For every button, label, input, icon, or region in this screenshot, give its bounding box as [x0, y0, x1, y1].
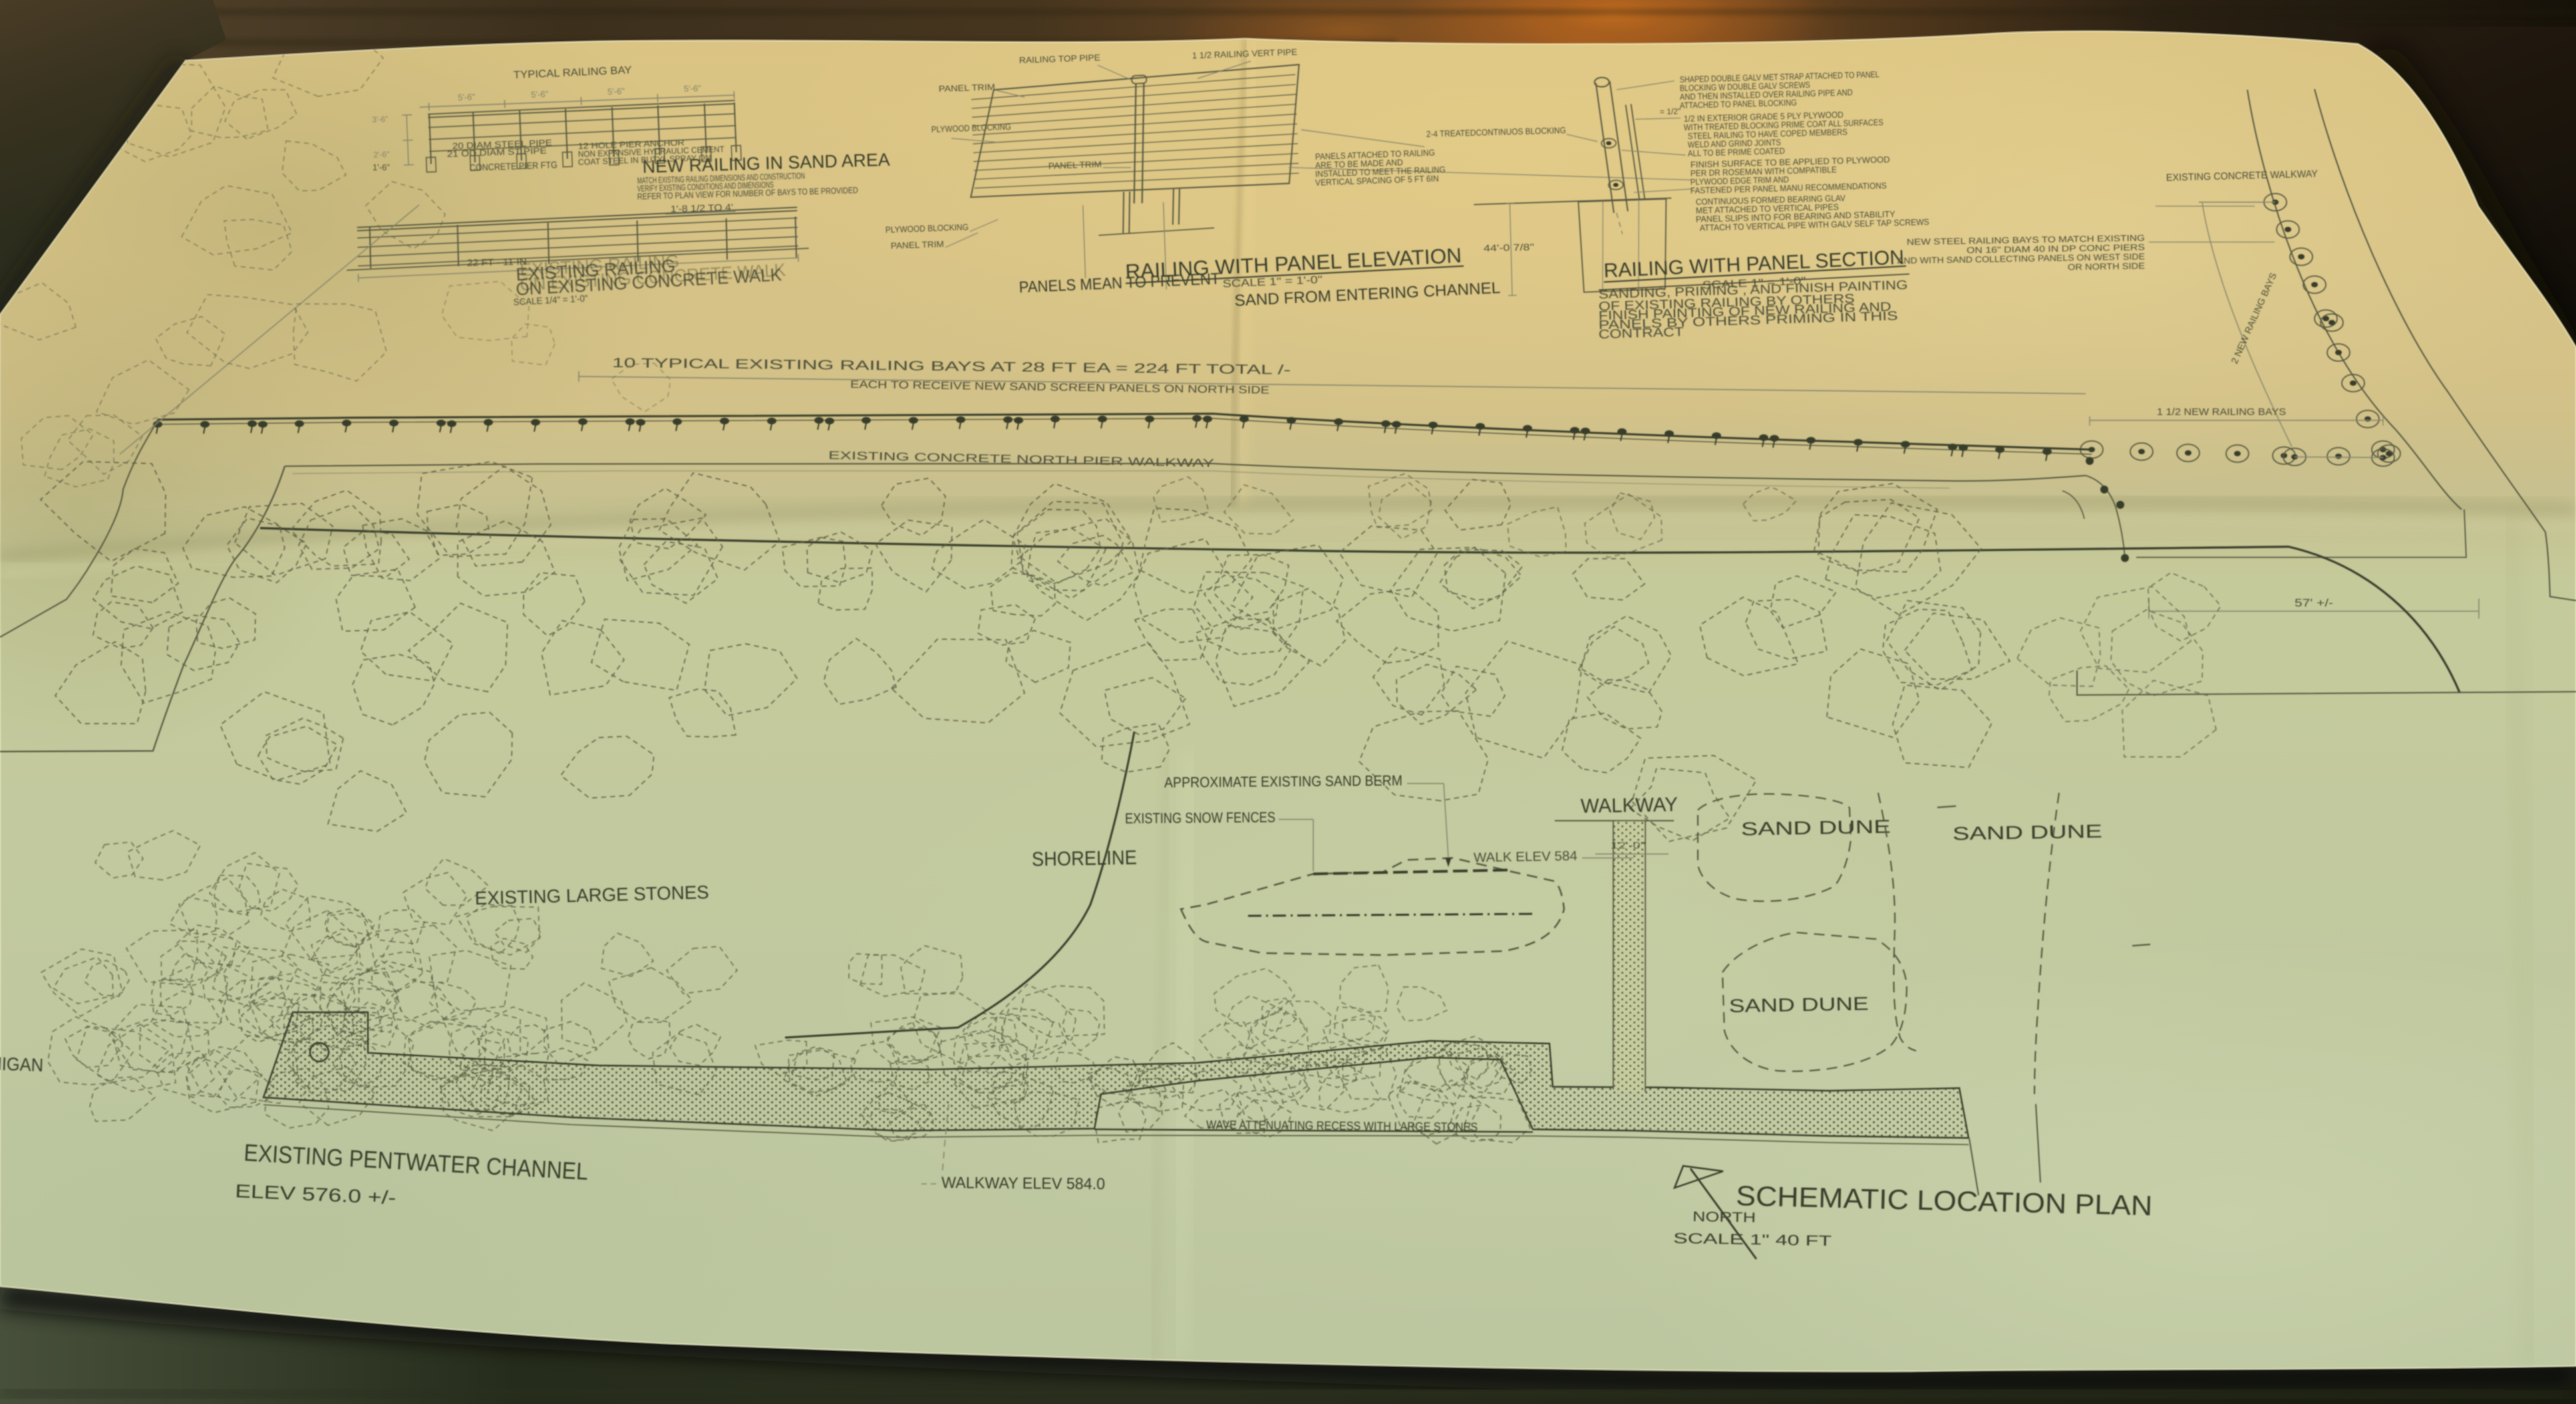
svg-text:LAKE MICHIGAN: LAKE MICHIGAN: [0, 1050, 44, 1075]
svg-text:WALKWAY ELEV 584.0: WALKWAY ELEV 584.0: [941, 1174, 1105, 1193]
svg-text:1'-6": 1'-6": [373, 162, 390, 172]
svg-text:1 1/2 NEW RAILING BAYS: 1 1/2 NEW RAILING BAYS: [2157, 406, 2286, 418]
svg-text:12'-0": 12'-0": [1611, 840, 1645, 851]
svg-text:WALK ELEV 584: WALK ELEV 584: [1474, 849, 1577, 865]
svg-text:NORTH: NORTH: [1692, 1209, 1756, 1226]
svg-text:5'-6": 5'-6": [684, 83, 702, 94]
svg-text:PANEL TRIM: PANEL TRIM: [891, 239, 944, 251]
svg-text:CONTRACT: CONTRACT: [1598, 325, 1684, 342]
svg-text:57' +/-: 57' +/-: [2295, 597, 2333, 609]
svg-text:OR NORTH SIDE: OR NORTH SIDE: [2068, 261, 2146, 272]
svg-text:WAVE ATTENUATING RECESS WITH L: WAVE ATTENUATING RECESS WITH LARGE STONE…: [1206, 1118, 1478, 1134]
svg-text:WALKWAY: WALKWAY: [1581, 793, 1679, 817]
svg-text:44'-0 7/8": 44'-0 7/8": [1484, 241, 1534, 253]
svg-text:5'-6": 5'-6": [458, 92, 476, 102]
svg-text:3'-6": 3'-6": [372, 114, 388, 124]
svg-text:SHORELINE: SHORELINE: [1032, 847, 1138, 871]
svg-text:5'-6": 5'-6": [531, 89, 549, 100]
svg-text:SAND DUNE: SAND DUNE: [1729, 993, 1869, 1016]
svg-text:PANEL TRIM: PANEL TRIM: [1048, 159, 1102, 171]
svg-text:SCALE 1" 40 FT: SCALE 1" 40 FT: [1673, 1230, 1832, 1249]
svg-text:EXISTING SNOW FENCES: EXISTING SNOW FENCES: [1125, 809, 1275, 827]
svg-text:SAND DUNE: SAND DUNE: [1741, 816, 1891, 839]
svg-text:APPROXIMATE EXISTING SAND BERM: APPROXIMATE EXISTING SAND BERM: [1164, 772, 1402, 791]
svg-text:5'-6": 5'-6": [607, 86, 625, 96]
svg-text:2'-6": 2'-6": [373, 150, 389, 160]
svg-text:= 1/2": = 1/2": [1660, 106, 1681, 116]
svg-text:SAND DUNE: SAND DUNE: [1953, 821, 2103, 844]
svg-text:PANEL TRIM: PANEL TRIM: [939, 82, 995, 94]
